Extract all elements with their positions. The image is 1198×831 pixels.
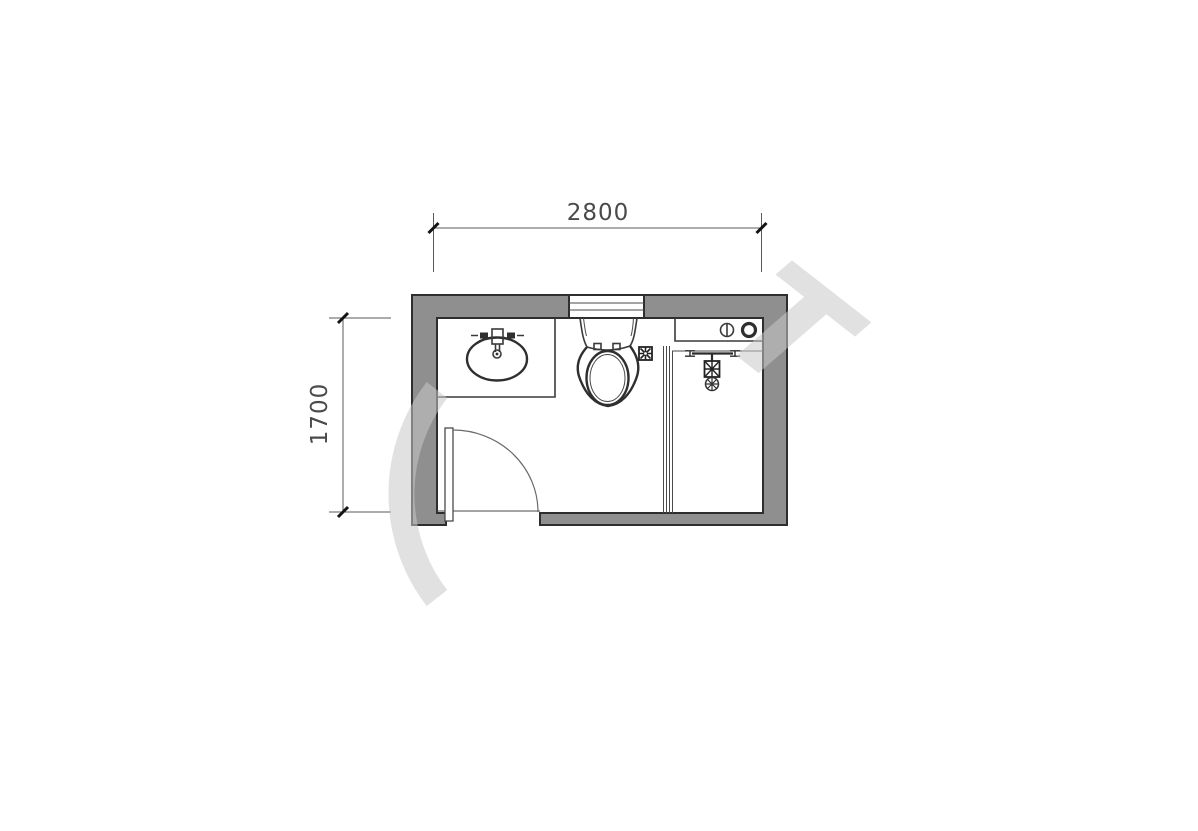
wall-right	[763, 318, 787, 513]
door-opening-jambs	[446, 513, 540, 525]
toilet-tank-sides	[580, 318, 637, 347]
wall-bottom	[540, 513, 787, 525]
toilet-seat-outer	[587, 351, 629, 405]
toilet	[578, 318, 638, 406]
watermark: T	[401, 231, 889, 598]
floor-plan-canvas: 2800 1700 T	[0, 0, 1198, 831]
toilet-seat-inner	[590, 355, 625, 402]
shower-head-icon	[685, 351, 740, 391]
wall-top-left-segment	[412, 295, 569, 318]
dimension-left-extension-lines	[329, 318, 391, 512]
floor-plan: 2800 1700 T	[0, 0, 1198, 831]
window-frame	[569, 295, 644, 318]
floor-drain-icon	[639, 347, 652, 360]
sink-drain-dot	[496, 353, 499, 356]
shower-area	[664, 318, 764, 513]
shower-partition	[664, 346, 673, 513]
door-swing-arc	[453, 430, 538, 512]
washer-shelf	[675, 318, 763, 341]
ring-knob-icon	[743, 324, 756, 337]
dimension-depth-label: 1700	[307, 383, 333, 446]
wall-inner-outline	[437, 318, 763, 513]
door	[437, 428, 540, 521]
door-leaf	[445, 428, 453, 521]
wall-top-right-segment	[644, 295, 787, 318]
dimension-top: 2800	[429, 200, 767, 272]
window	[569, 295, 644, 318]
vanity-counter	[437, 318, 555, 397]
dimension-width-label: 2800	[567, 200, 630, 226]
toilet-tank-inner-lines	[584, 318, 634, 336]
walls	[412, 295, 787, 525]
wall-left	[412, 318, 437, 525]
dimension-left: 1700	[307, 313, 391, 517]
wall-outer-outline	[412, 295, 787, 525]
